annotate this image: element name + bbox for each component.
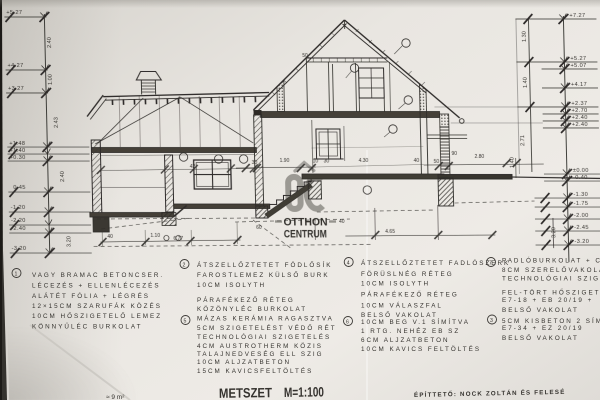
svg-text:10CM VÁLASZFAL: 10CM VÁLASZFAL bbox=[361, 301, 443, 310]
svg-text:1: 1 bbox=[15, 272, 20, 278]
svg-text:3.20: 3.20 bbox=[66, 236, 72, 247]
svg-text:PÁRAFÉKEZŐ RÉTEG: PÁRAFÉKEZŐ RÉTEG bbox=[197, 295, 295, 304]
svg-text:30: 30 bbox=[252, 160, 258, 166]
svg-text:KÖNNYŰLÉC BURKOLAT: KÖNNYŰLÉC BURKOLAT bbox=[32, 322, 142, 331]
svg-text:1.40: 1.40 bbox=[523, 77, 529, 88]
svg-text:E7-34 + EZ 20/19: E7-34 + EZ 20/19 bbox=[502, 325, 584, 332]
svg-text:6CM ALJZATBETON: 6CM ALJZATBETON bbox=[361, 337, 450, 344]
svg-text:-2.40: -2.40 bbox=[11, 226, 26, 232]
svg-text:10CM ALJZATBETON: 10CM ALJZATBETON bbox=[197, 359, 291, 366]
svg-text:-1.30: -1.30 bbox=[573, 192, 588, 198]
svg-text:TECHNOLÓGIAI SZIGETELÉS: TECHNOLÓGIAI SZIGETELÉS bbox=[197, 332, 331, 341]
svg-text:+5.27: +5.27 bbox=[570, 56, 586, 62]
svg-text:+2.70: +2.70 bbox=[571, 108, 587, 114]
svg-text:3.20: 3.20 bbox=[551, 227, 557, 238]
svg-text:3: 3 bbox=[490, 318, 495, 324]
svg-text:+4.27: +4.27 bbox=[7, 63, 23, 69]
svg-text:4.30: 4.30 bbox=[359, 158, 369, 164]
svg-text:PADLÓBURKOLAT + CIP: PADLÓBURKOLAT + CIP bbox=[502, 256, 600, 265]
svg-text:PÁRAFÉKEZŐ RÉTEG: PÁRAFÉKEZŐ RÉTEG bbox=[361, 290, 459, 299]
svg-text:FEL-TÖRT HŐSZIGET: FEL-TÖRT HŐSZIGET bbox=[502, 288, 600, 297]
svg-text:4: 4 bbox=[347, 261, 352, 267]
svg-text:90: 90 bbox=[451, 151, 457, 157]
svg-text:+2.37: +2.37 bbox=[571, 101, 587, 107]
svg-text:12×15CM SZARUFÁK KÖZÉS: 12×15CM SZARUFÁK KÖZÉS bbox=[32, 301, 162, 310]
svg-text:M=1:100: M=1:100 bbox=[284, 384, 324, 400]
svg-text:40: 40 bbox=[339, 219, 345, 225]
svg-text:10CM ISOLYTH: 10CM ISOLYTH bbox=[197, 282, 266, 289]
svg-text:-3.20: -3.20 bbox=[12, 246, 27, 252]
svg-text:1.30: 1.30 bbox=[522, 31, 528, 42]
svg-text:+3.27: +3.27 bbox=[8, 86, 24, 92]
svg-text:6.77: 6.77 bbox=[173, 236, 183, 242]
svg-text:5: 5 bbox=[184, 319, 189, 325]
svg-text:BELSŐ VAKOLAT: BELSŐ VAKOLAT bbox=[361, 310, 438, 319]
svg-text:1.00: 1.00 bbox=[48, 74, 54, 85]
svg-text:4.65: 4.65 bbox=[385, 229, 395, 235]
svg-text:+1.48: +1.48 bbox=[9, 141, 25, 147]
svg-text:FÖRÜSLNÉG RÉTEG: FÖRÜSLNÉG RÉTEG bbox=[361, 269, 454, 278]
svg-text:ALÁTÉT FÓLIA + LÉGRÉS: ALÁTÉT FÓLIA + LÉGRÉS bbox=[32, 291, 150, 300]
svg-text:OTTHON: OTTHON bbox=[283, 217, 327, 229]
svg-text:10CM HŐSZIGETELŐ LEMEZ: 10CM HŐSZIGETELŐ LEMEZ bbox=[32, 311, 162, 320]
svg-text:2.80: 2.80 bbox=[474, 154, 484, 160]
svg-text:TALAJNEDVESÉG ELL SZIG: TALAJNEDVESÉG ELL SZIG bbox=[197, 349, 324, 358]
svg-text:±0.00: ±0.00 bbox=[573, 168, 589, 174]
svg-text:+2.40: +2.40 bbox=[572, 122, 588, 128]
svg-text:40: 40 bbox=[107, 234, 113, 240]
svg-text:10: 10 bbox=[313, 159, 319, 165]
svg-text:10CM BEG V.1 SÍMÍTVA: 10CM BEG V.1 SÍMÍTVA bbox=[361, 317, 470, 326]
svg-text:KÖZÖNYLÉC BURKOLAT: KÖZÖNYLÉC BURKOLAT bbox=[197, 304, 307, 313]
svg-text:METSZET: METSZET bbox=[219, 385, 273, 400]
svg-text:1.10: 1.10 bbox=[150, 233, 160, 239]
svg-text:LÉCEZÉS + ELLENLÉCEZÉS: LÉCEZÉS + ELLENLÉCEZÉS bbox=[32, 281, 161, 290]
svg-text:+0.30: +0.30 bbox=[10, 155, 26, 161]
svg-text:-0.40: -0.40 bbox=[573, 175, 588, 181]
svg-text:+5.27: +5.27 bbox=[6, 10, 22, 16]
svg-text:TECHNOLÓGIAI SZIG: TECHNOLÓGIAI SZIG bbox=[502, 274, 600, 283]
svg-text:5CM SZIGETELÉST VÉDŐ RÉT: 5CM SZIGETELÉST VÉDŐ RÉT bbox=[197, 323, 337, 332]
svg-text:30: 30 bbox=[324, 159, 330, 165]
svg-text:-2.45: -2.45 bbox=[574, 225, 589, 231]
svg-text:0.45: 0.45 bbox=[13, 185, 26, 191]
svg-text:7: 7 bbox=[489, 261, 494, 267]
svg-text:2: 2 bbox=[183, 263, 188, 269]
svg-text:50: 50 bbox=[302, 53, 308, 59]
svg-text:10CM KAVICS FELTÖLTÉS: 10CM KAVICS FELTÖLTÉS bbox=[361, 344, 481, 353]
svg-text:+2.40: +2.40 bbox=[572, 115, 588, 121]
svg-text:+7.27: +7.27 bbox=[569, 13, 585, 19]
svg-text:60: 60 bbox=[256, 225, 262, 231]
svg-text:-1.20: -1.20 bbox=[11, 205, 26, 211]
svg-text:-3.20: -3.20 bbox=[574, 239, 589, 245]
svg-text:2.43: 2.43 bbox=[54, 117, 60, 128]
svg-text:8CM SZERELŐVAKOLAT: 8CM SZERELŐVAKOLAT bbox=[502, 265, 600, 274]
svg-text:1.40: 1.40 bbox=[510, 157, 516, 168]
svg-text:CENTRUM: CENTRUM bbox=[284, 229, 327, 241]
svg-text:40: 40 bbox=[414, 158, 420, 164]
svg-text:50: 50 bbox=[434, 159, 440, 165]
svg-text:MÁZAS KERÁMIA RAGASZTVA: MÁZAS KERÁMIA RAGASZTVA bbox=[197, 314, 334, 323]
svg-text:BELSŐ VAKOLAT: BELSŐ VAKOLAT bbox=[502, 333, 579, 342]
svg-text:5CM KISBETON 2 SÍM: 5CM KISBETON 2 SÍM bbox=[502, 316, 600, 325]
svg-text:VAGY BRAMAC BETONCSER.: VAGY BRAMAC BETONCSER. bbox=[32, 272, 164, 279]
svg-text:≈ 9 m²: ≈ 9 m² bbox=[106, 394, 125, 400]
svg-text:+1.40: +1.40 bbox=[9, 148, 25, 154]
svg-text:2.40: 2.40 bbox=[60, 171, 66, 182]
svg-text:-2.00: -2.00 bbox=[574, 213, 589, 219]
svg-text:15CM KAVICSFELTÖLTÉS: 15CM KAVICSFELTÖLTÉS bbox=[197, 366, 313, 375]
svg-text:2.40: 2.40 bbox=[47, 37, 53, 48]
svg-text:10CM ISOLYTH: 10CM ISOLYTH bbox=[361, 281, 430, 288]
svg-text:6: 6 bbox=[346, 320, 351, 326]
svg-text:1.90: 1.90 bbox=[280, 158, 290, 164]
svg-text:BELSŐ VAKOLAT: BELSŐ VAKOLAT bbox=[502, 305, 579, 314]
svg-text:FAROSTLEMEZ KÜLSŐ BURK: FAROSTLEMEZ KÜLSŐ BURK bbox=[197, 270, 330, 279]
svg-text:4CM AUSTROTHERM KÖZIS: 4CM AUSTROTHERM KÖZIS bbox=[197, 342, 323, 350]
svg-text:-2.20: -2.20 bbox=[11, 218, 26, 224]
svg-text:E7-18 + EB 20/19 +: E7-18 + EB 20/19 + bbox=[502, 297, 593, 304]
svg-text:42: 42 bbox=[190, 164, 196, 170]
svg-text:+5.07: +5.07 bbox=[570, 63, 586, 69]
svg-text:-1.75: -1.75 bbox=[574, 201, 589, 207]
svg-text:+4.17: +4.17 bbox=[571, 82, 587, 88]
svg-text:2.71: 2.71 bbox=[520, 135, 526, 146]
svg-text:1 RTG. NEHÉZ EB SZ: 1 RTG. NEHÉZ EB SZ bbox=[361, 326, 460, 335]
svg-text:ÁTSZELLŐZTETET FÖDLŐSÍK: ÁTSZELLŐZTETET FÖDLŐSÍK bbox=[197, 260, 332, 269]
